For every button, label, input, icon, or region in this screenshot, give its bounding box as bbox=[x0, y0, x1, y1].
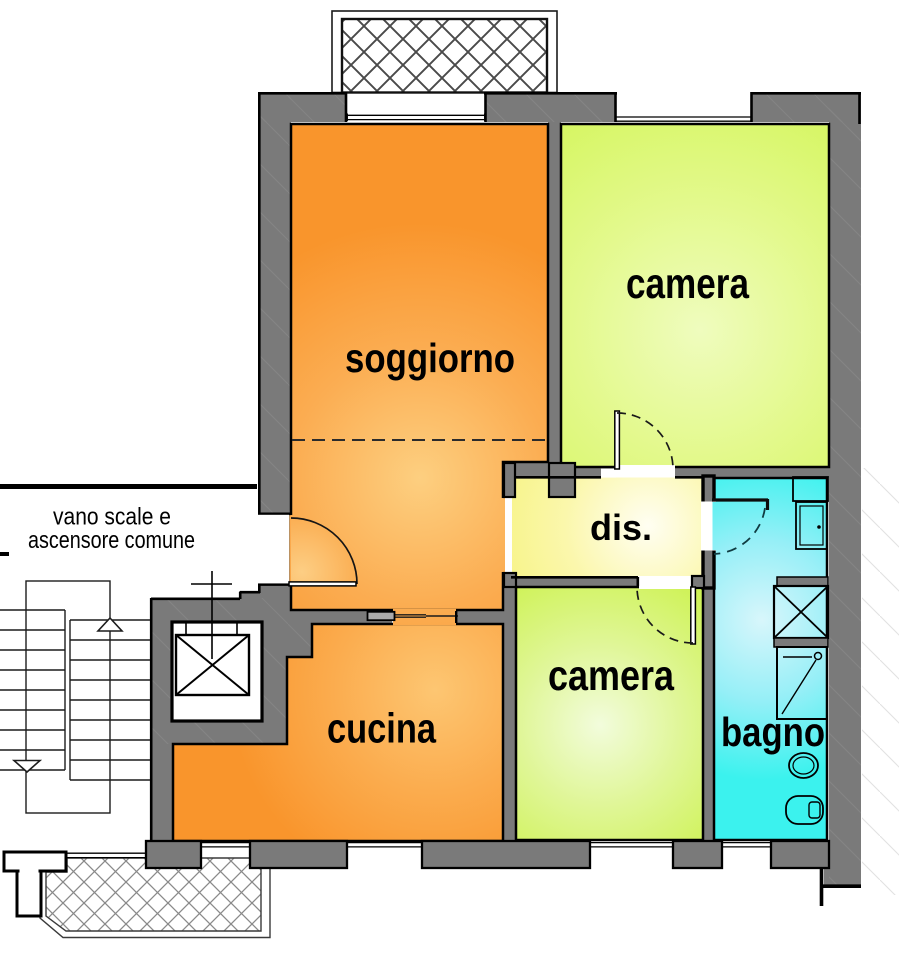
svg-text:camera: camera bbox=[626, 260, 750, 308]
svg-text:ascensore comune: ascensore comune bbox=[28, 527, 195, 554]
svg-text:camera: camera bbox=[548, 652, 675, 700]
svg-text:bagno: bagno bbox=[721, 709, 825, 755]
svg-text:cucina: cucina bbox=[327, 705, 437, 752]
svg-text:dis.: dis. bbox=[590, 507, 652, 548]
svg-text:soggiorno: soggiorno bbox=[345, 335, 515, 381]
